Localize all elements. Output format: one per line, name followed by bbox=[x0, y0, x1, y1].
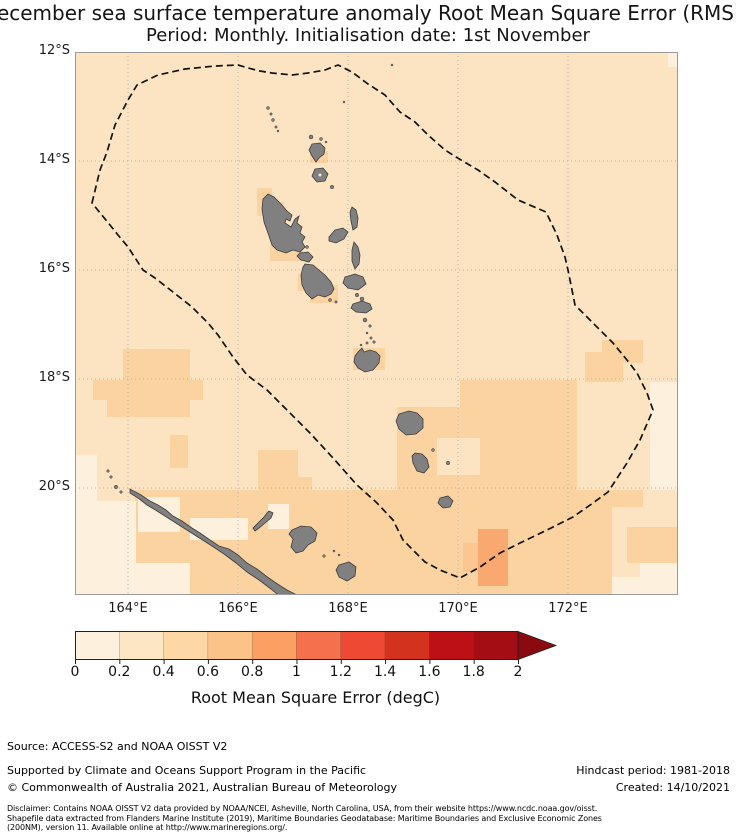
islet bbox=[360, 297, 364, 301]
islet bbox=[325, 141, 327, 143]
lat-tick-label: 12°S bbox=[18, 43, 70, 58]
rmse-cell bbox=[612, 577, 678, 595]
lon-tick-label: 168°E bbox=[318, 601, 378, 616]
islet bbox=[446, 461, 450, 465]
rmse-cell bbox=[668, 52, 678, 67]
islet bbox=[323, 555, 326, 558]
supported-by-text: Supported by Climate and Oceans Support … bbox=[7, 764, 366, 777]
colorbar-segment bbox=[119, 632, 163, 660]
colorbar-extend-arrow bbox=[518, 632, 556, 660]
colorbar-axis-label: Root Mean Square Error (degC) bbox=[75, 688, 556, 707]
rmse-cell bbox=[585, 352, 623, 382]
source-text: Source: ACCESS-S2 and NOAA OISST V2 bbox=[7, 740, 227, 753]
gaua-crater-lake bbox=[319, 174, 322, 177]
colorbar-tick-label: 0 bbox=[53, 664, 97, 680]
colorbar-tick-label: 1.6 bbox=[407, 664, 451, 680]
rmse-cell bbox=[93, 380, 203, 400]
rmse-cell bbox=[627, 527, 678, 563]
rmse-cell bbox=[612, 490, 643, 507]
islet bbox=[110, 476, 113, 479]
created-date-text: Created: 14/10/2021 bbox=[616, 781, 730, 794]
lon-tick-label: 164°E bbox=[98, 601, 158, 616]
islet bbox=[306, 246, 309, 249]
colorbar-tick-label: 1 bbox=[275, 664, 319, 680]
colorbar-segment bbox=[208, 632, 252, 660]
colorbar-tick-label: 1.2 bbox=[319, 664, 363, 680]
rmse-cell bbox=[75, 501, 136, 595]
rmse-cell bbox=[107, 400, 190, 417]
rmse-cell bbox=[170, 435, 188, 468]
lon-tick-label: 172°E bbox=[538, 601, 598, 616]
disclaimer-line: Shapefile data extracted from Flanders M… bbox=[7, 814, 602, 824]
hindcast-period-text: Hindcast period: 1981-2018 bbox=[576, 764, 730, 777]
colorbar-segment bbox=[385, 632, 429, 660]
lat-tick-label: 18°S bbox=[18, 370, 70, 385]
colorbar-tick-label: 0.8 bbox=[230, 664, 274, 680]
colorbar-segment bbox=[429, 632, 473, 660]
colorbar-tick-label: 0.4 bbox=[142, 664, 186, 680]
islet bbox=[335, 301, 337, 303]
islet bbox=[329, 299, 332, 302]
lon-tick-label: 170°E bbox=[428, 601, 488, 616]
islet bbox=[369, 325, 372, 328]
islet bbox=[360, 344, 362, 346]
islet bbox=[107, 470, 110, 473]
figure-title: December sea surface temperature anomaly… bbox=[0, 1, 736, 25]
islet bbox=[120, 491, 123, 494]
lat-tick-label: 16°S bbox=[18, 261, 70, 276]
islet bbox=[373, 341, 376, 344]
rmse-cell bbox=[463, 543, 478, 572]
disclaimer-line: Disclaimer: Contains NOAA OISST V2 data … bbox=[7, 804, 597, 814]
figure-subtitle: Period: Monthly. Initialisation date: 1s… bbox=[146, 25, 590, 46]
islet bbox=[370, 337, 372, 339]
islet bbox=[338, 554, 340, 556]
islet bbox=[391, 64, 393, 66]
colorbar-segment bbox=[474, 632, 518, 660]
islet bbox=[270, 113, 272, 115]
islet bbox=[363, 318, 367, 322]
disclaimer-line: (200NM), version 11. Available online at… bbox=[7, 823, 287, 833]
colorbar-tick-label: 0.2 bbox=[97, 664, 141, 680]
islet bbox=[330, 185, 334, 189]
colorbar bbox=[75, 631, 558, 665]
islet bbox=[267, 107, 270, 110]
islet bbox=[333, 550, 335, 552]
islet bbox=[114, 485, 118, 489]
lat-tick-label: 14°S bbox=[18, 152, 70, 167]
rmse-cell bbox=[75, 455, 97, 501]
rmse-cell bbox=[650, 382, 678, 490]
colorbar-segment bbox=[75, 632, 119, 660]
lat-tick-label: 20°S bbox=[18, 479, 70, 494]
colorbar-tick-label: 1.4 bbox=[363, 664, 407, 680]
islet bbox=[277, 130, 279, 132]
islet bbox=[366, 342, 368, 344]
colorbar-tick-label: 0.6 bbox=[186, 664, 230, 680]
colorbar-segment bbox=[341, 632, 385, 660]
colorbar-tick-label: 1.8 bbox=[452, 664, 496, 680]
colorbar-segment bbox=[164, 632, 208, 660]
islet bbox=[320, 138, 323, 141]
islet bbox=[432, 449, 435, 452]
rmse-cell bbox=[123, 349, 190, 380]
title-block: December sea surface temperature anomaly… bbox=[0, 0, 736, 50]
colorbar-segment bbox=[297, 632, 341, 660]
islet bbox=[355, 293, 359, 297]
islet bbox=[366, 332, 368, 334]
islet bbox=[309, 135, 313, 139]
figure-root: { "title": { "line1": "December sea surf… bbox=[0, 0, 736, 839]
rmse-cell bbox=[298, 477, 312, 490]
islet bbox=[343, 101, 345, 103]
lon-tick-label: 166°E bbox=[208, 601, 268, 616]
islet bbox=[272, 119, 275, 122]
colorbar-tick-label: 2 bbox=[496, 664, 540, 680]
rmse-cell bbox=[258, 450, 298, 490]
copyright-text: © Commonwealth of Australia 2021, Austra… bbox=[7, 781, 397, 794]
rmse-cell bbox=[136, 563, 190, 595]
islet bbox=[275, 126, 277, 128]
colorbar-segment bbox=[252, 632, 296, 660]
map-canvas bbox=[75, 52, 678, 595]
